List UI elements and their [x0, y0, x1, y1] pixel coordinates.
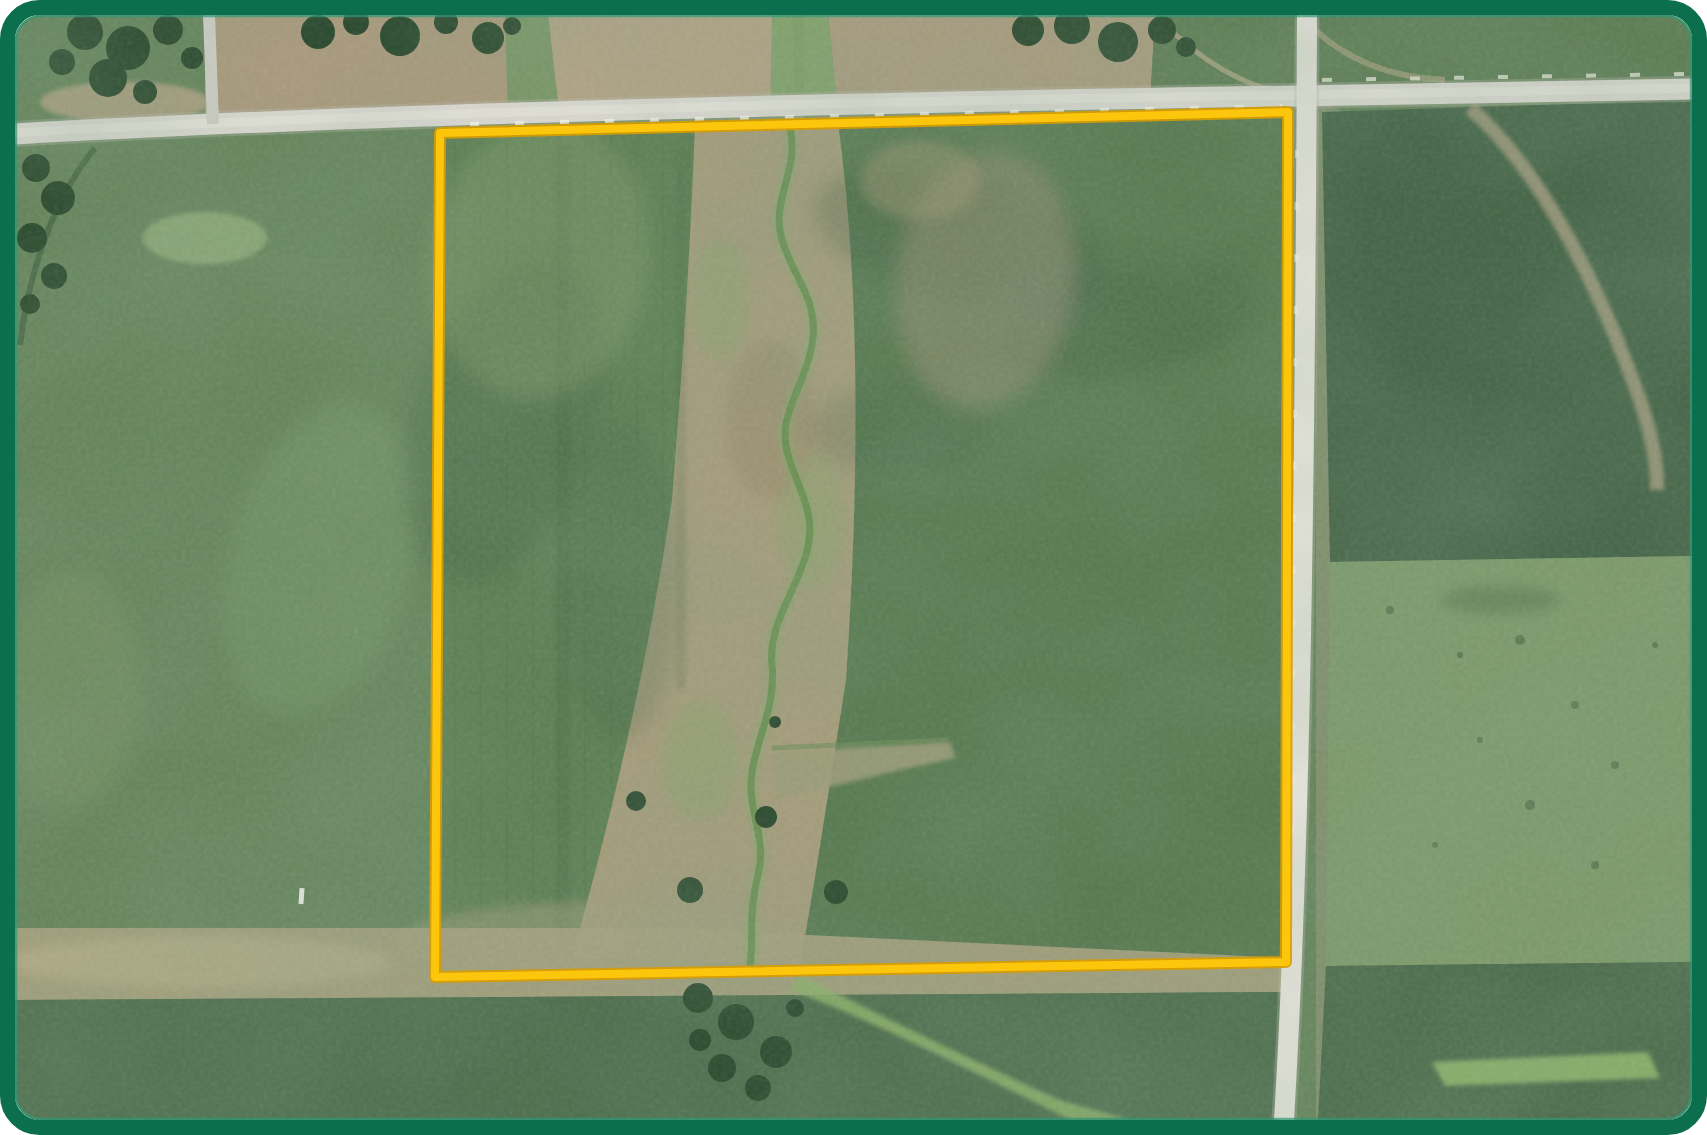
- aerial-map: [0, 0, 1707, 1135]
- tree-canopy: [89, 59, 127, 97]
- tree-canopy: [106, 26, 150, 70]
- plowed-field-mid: [548, 15, 780, 120]
- creek-path: [750, 128, 814, 966]
- tree-canopy: [786, 999, 804, 1017]
- creek-corridor: [572, 122, 856, 964]
- parcel-interior: [367, 103, 1288, 978]
- field-shadow: [810, 385, 990, 475]
- field-edge-curve: [20, 148, 95, 345]
- tan-margin-highlight: [10, 936, 390, 988]
- tree-canopy: [745, 1075, 771, 1101]
- drainage-arm-edge: [772, 740, 948, 748]
- plowed-field-east: [828, 15, 1155, 112]
- parcel-boundary: [435, 112, 1288, 977]
- speckle-dot: [1386, 606, 1394, 614]
- frame-inner-edge: [16, 16, 1691, 1119]
- tree-clusters: [17, 8, 1196, 1101]
- field-shadow: [991, 239, 1268, 401]
- tree-canopy: [41, 181, 75, 215]
- speckle-dot: [1525, 800, 1535, 810]
- pasture-field: [1326, 556, 1692, 966]
- speckle-dot: [1652, 642, 1658, 648]
- corridor-mottle: [660, 700, 740, 820]
- horizontal-road: [15, 89, 1692, 134]
- vertical-road: [1284, 15, 1307, 1120]
- corridor-mottle: [690, 240, 750, 360]
- se-dark-field: [1318, 962, 1692, 1120]
- bright-grass-strip: [1432, 1052, 1660, 1086]
- tree-cluster-west-edge: [17, 154, 75, 314]
- field-shadow: [560, 420, 680, 740]
- tree-canopy: [1012, 14, 1044, 46]
- speckle-dot: [1515, 635, 1525, 645]
- parcel-field-west-rows: [436, 126, 695, 962]
- tree-cluster-nw-corner: [49, 14, 203, 104]
- plowed-field-west: [205, 15, 520, 126]
- parcel-boundary-overlay: [435, 112, 1288, 977]
- ne-corner-field: [1150, 15, 1296, 104]
- shoulder-dashes-south: [470, 106, 1282, 124]
- tree-canopy: [181, 47, 203, 69]
- horizontal-road-centerline: [15, 88, 1692, 133]
- grass-wedge: [505, 15, 560, 122]
- tree-canopy: [343, 9, 369, 35]
- speckle-dot: [1611, 761, 1619, 769]
- tree-canopy: [472, 22, 504, 54]
- tree-canopy: [683, 983, 713, 1013]
- creek: [626, 15, 955, 966]
- pond-dot: [755, 806, 777, 828]
- tree-canopy: [718, 1004, 754, 1040]
- tree-canopy: [67, 14, 103, 50]
- tree-canopy: [677, 877, 703, 903]
- tree-canopy: [824, 880, 848, 904]
- tree-canopy: [380, 16, 420, 56]
- tree-canopy: [1176, 37, 1196, 57]
- bright-patch: [143, 212, 267, 264]
- shoulder-dashes-vertical: [1291, 150, 1297, 950]
- creek-halo: [750, 128, 814, 966]
- horizontal-road-casing: [15, 89, 1692, 134]
- parcel-field-east: [800, 112, 1288, 964]
- speckle-dot: [1591, 861, 1599, 869]
- tree-canopy: [503, 17, 521, 35]
- bottom-dark-field: [15, 992, 1290, 1120]
- light-sage-patch: [407, 103, 672, 417]
- vertical-road-casing: [1284, 15, 1307, 1120]
- shoulder-dashes-north-east: [1322, 74, 1686, 80]
- tree-cluster-north-1: [301, 9, 521, 56]
- corner-tan-patch: [40, 82, 210, 122]
- tan-field-margin: [15, 928, 1290, 1000]
- creek-upstream: [798, 15, 800, 122]
- pond-dot: [769, 716, 781, 728]
- corridor-mottle-tan: [725, 340, 815, 500]
- cloud-texture-overlay: [15, 15, 1692, 1120]
- dark-crop-field: [1322, 100, 1692, 562]
- tree-canopy: [301, 15, 335, 49]
- speckle-dot: [1432, 842, 1438, 848]
- drainage-arm: [772, 742, 955, 800]
- bottom-light-band: [400, 902, 800, 978]
- tan-mottle-patch: [860, 140, 980, 220]
- tree-canopy: [20, 294, 40, 314]
- tree-cluster-north-2: [1012, 8, 1196, 62]
- corridor-mottle: [777, 450, 847, 590]
- roads: [15, 15, 1692, 1120]
- olive-patch: [0, 570, 140, 810]
- road-east-margin: [1316, 96, 1342, 1120]
- listing-photo-card[interactable]: [0, 0, 1707, 1135]
- south-fields: [10, 928, 1290, 1120]
- pasture-smudge: [1440, 586, 1560, 614]
- light-band: [192, 382, 449, 738]
- speckle-dot: [1477, 737, 1483, 743]
- tree-canopy: [49, 49, 75, 75]
- tree-canopy: [434, 10, 458, 34]
- grain-texture-overlay: [15, 15, 1692, 1120]
- tree-canopy: [153, 15, 183, 45]
- tree-canopy: [22, 154, 50, 182]
- parcel-field-west: [436, 126, 695, 962]
- tree-canopy: [708, 1054, 736, 1082]
- tree-canopy: [133, 80, 157, 104]
- speckle-dot: [1571, 701, 1579, 709]
- tree-canopy: [1098, 22, 1138, 62]
- row-shadow-band: [676, 150, 686, 690]
- west-field-details: [0, 148, 448, 904]
- tree-canopy: [689, 1029, 711, 1051]
- speckle-dot: [1457, 652, 1463, 658]
- field-shadow: [367, 231, 643, 610]
- parcel-boundary-casing: [435, 112, 1288, 977]
- se-waterway: [790, 975, 1130, 1120]
- east-fields: [1316, 96, 1692, 1120]
- tree-canopy: [17, 223, 47, 253]
- tree-cluster-south-creek: [683, 983, 804, 1101]
- row-shadow-band: [556, 145, 570, 935]
- tree-canopy: [760, 1036, 792, 1068]
- pond-dot: [626, 791, 646, 811]
- ne-field-margin: [1160, 20, 1290, 95]
- white-marker: [298, 888, 304, 904]
- tan-mottle-patch: [878, 139, 1092, 422]
- field-shadow: [798, 138, 1121, 341]
- north-fields: [40, 15, 1692, 126]
- tree-canopy: [41, 263, 67, 289]
- driveway: [209, 15, 213, 124]
- tree-canopy: [1054, 8, 1090, 44]
- pasture-speckles: [1386, 606, 1658, 869]
- frame-border: [8, 8, 1700, 1128]
- field-access-trail: [1470, 108, 1657, 490]
- tree-canopy: [1148, 16, 1176, 44]
- nne-field: [1296, 15, 1692, 96]
- base-field: [15, 15, 1692, 1120]
- nne-field-margin: [1310, 25, 1445, 80]
- waterway-strip: [770, 15, 838, 114]
